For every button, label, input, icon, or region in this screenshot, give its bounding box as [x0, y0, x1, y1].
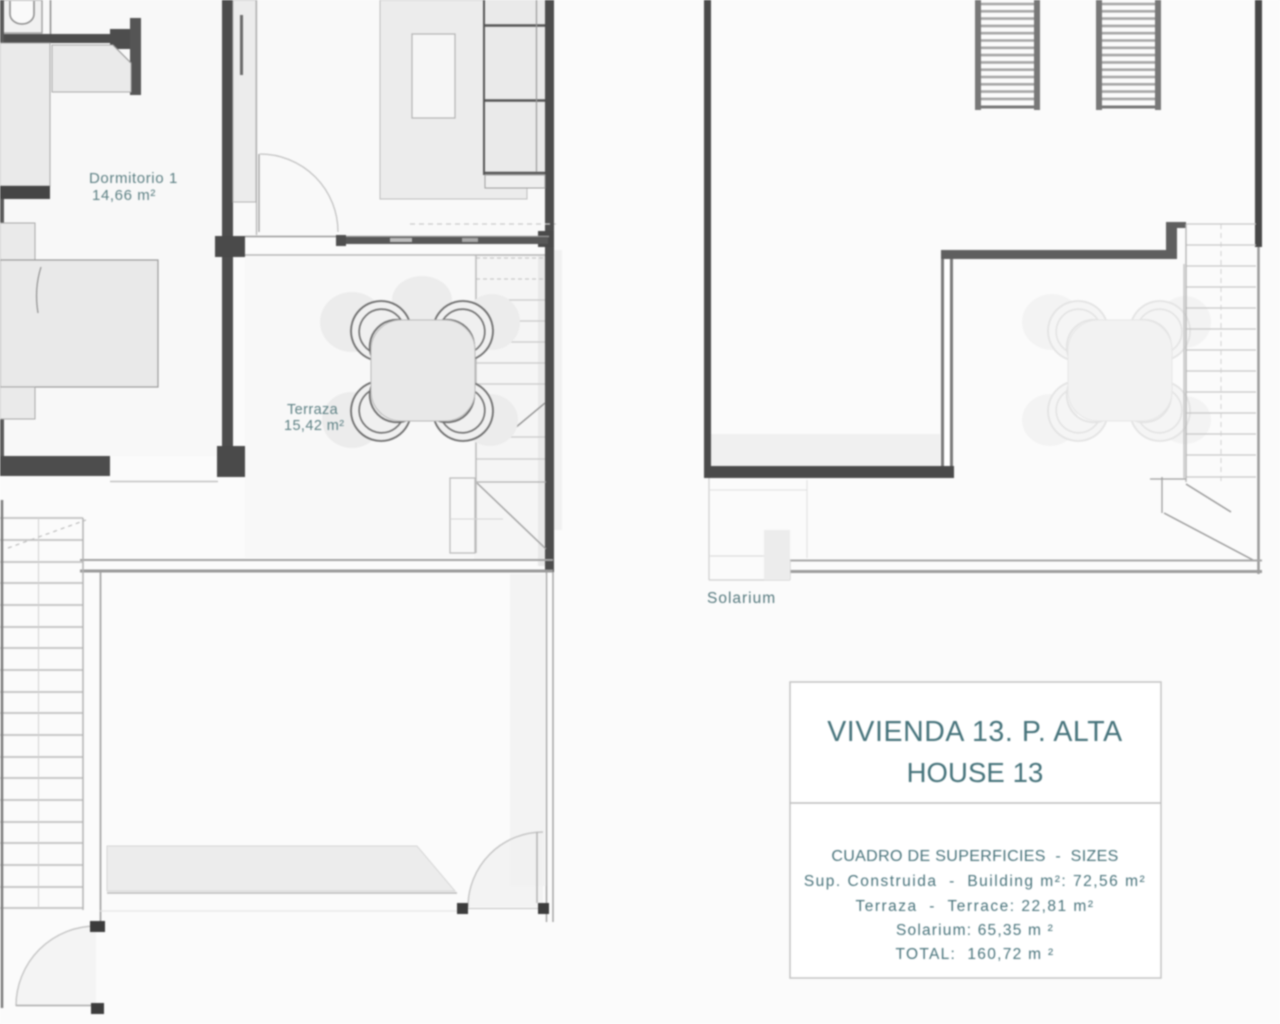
svg-text:HOUSE 13: HOUSE 13: [907, 757, 1044, 788]
svg-text:CUADRO DE SUPERFICIES - SIZE: CUADRO DE SUPERFICIES - SIZES: [831, 848, 1118, 865]
svg-text:Dormitorio 1: Dormitorio 1: [89, 170, 178, 187]
svg-text:TOTAL: 160,72 m ²: TOTAL: 160,72 m ²: [896, 946, 1055, 963]
svg-text:15,42 m²: 15,42 m²: [284, 418, 344, 434]
svg-text:14,66 m²: 14,66 m²: [92, 187, 156, 204]
svg-text:Solarium: 65,35 m ²: Solarium: 65,35 m ²: [896, 922, 1054, 939]
svg-text:Solarium: Solarium: [707, 590, 776, 607]
svg-text:VIVIENDA 13. P. ALTA: VIVIENDA 13. P. ALTA: [827, 716, 1123, 748]
svg-text:Terraza - Terrace: 22,81 m²: Terraza - Terrace: 22,81 m²: [855, 898, 1094, 915]
svg-text:Terraza: Terraza: [287, 402, 339, 418]
svg-text:Sup. Construida - Building m: Sup. Construida - Building m²: 72,56 m²: [804, 873, 1146, 890]
